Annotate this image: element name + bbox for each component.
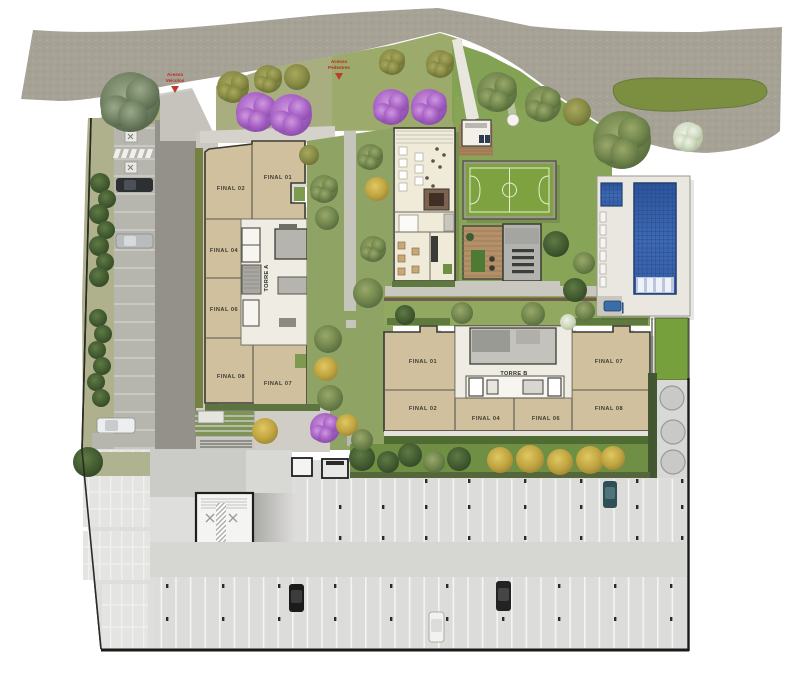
svg-text:FINAL 04: FINAL 04 <box>472 416 501 422</box>
svg-text:TORRE A: TORRE A <box>264 265 270 292</box>
svg-text:FINAL 01: FINAL 01 <box>264 175 292 181</box>
svg-text:FINAL 07: FINAL 07 <box>595 359 623 365</box>
svg-text:Pedestres: Pedestres <box>328 65 350 70</box>
svg-text:TORRE B: TORRE B <box>500 371 527 377</box>
svg-text:FINAL 06: FINAL 06 <box>532 416 560 422</box>
svg-text:Acesso: Acesso <box>167 72 184 77</box>
svg-text:FINAL 04: FINAL 04 <box>210 248 239 254</box>
svg-text:Acesso: Acesso <box>331 59 348 64</box>
svg-text:Veículos: Veículos <box>166 78 185 83</box>
svg-text:FINAL 02: FINAL 02 <box>409 406 437 412</box>
svg-text:FINAL 06: FINAL 06 <box>210 307 238 313</box>
svg-text:FINAL 07: FINAL 07 <box>264 381 292 387</box>
svg-text:FINAL 01: FINAL 01 <box>409 359 437 365</box>
svg-text:FINAL 08: FINAL 08 <box>217 374 245 380</box>
svg-text:FINAL 08: FINAL 08 <box>595 406 623 412</box>
svg-text:FINAL 02: FINAL 02 <box>217 186 245 192</box>
